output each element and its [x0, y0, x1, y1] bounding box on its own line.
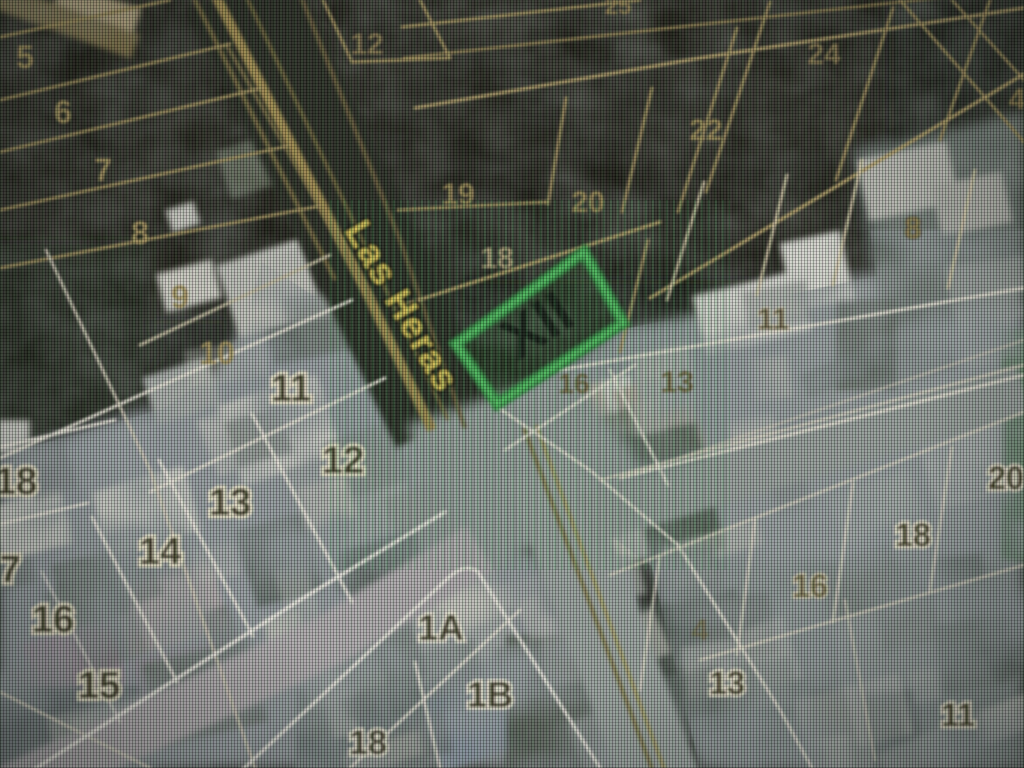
svg-text:13: 13	[209, 482, 251, 524]
svg-text:16: 16	[792, 568, 828, 604]
svg-text:11: 11	[941, 697, 975, 733]
svg-text:11: 11	[757, 303, 789, 336]
svg-text:22: 22	[689, 114, 722, 147]
svg-text:9: 9	[171, 279, 189, 315]
svg-text:5: 5	[16, 39, 34, 75]
svg-text:8: 8	[131, 215, 149, 251]
svg-text:20: 20	[988, 460, 1024, 496]
svg-text:12: 12	[350, 28, 383, 61]
svg-text:16: 16	[32, 599, 74, 641]
svg-text:15: 15	[78, 665, 120, 707]
svg-text:10: 10	[199, 335, 235, 371]
svg-text:18: 18	[895, 517, 931, 553]
svg-text:25: 25	[605, 0, 632, 20]
svg-text:6: 6	[54, 94, 72, 130]
svg-text:24: 24	[807, 38, 841, 71]
svg-text:7: 7	[94, 152, 112, 188]
svg-text:1B: 1B	[467, 674, 513, 715]
svg-text:8: 8	[905, 212, 922, 245]
svg-text:14: 14	[139, 531, 181, 573]
svg-text:13: 13	[709, 665, 745, 701]
svg-text:7: 7	[0, 549, 21, 591]
svg-text:18: 18	[349, 724, 387, 762]
svg-text:18: 18	[0, 461, 37, 503]
svg-text:1A: 1A	[418, 607, 464, 648]
svg-text:4: 4	[1009, 83, 1024, 116]
svg-text:11: 11	[271, 368, 311, 410]
svg-text:4: 4	[692, 614, 709, 647]
